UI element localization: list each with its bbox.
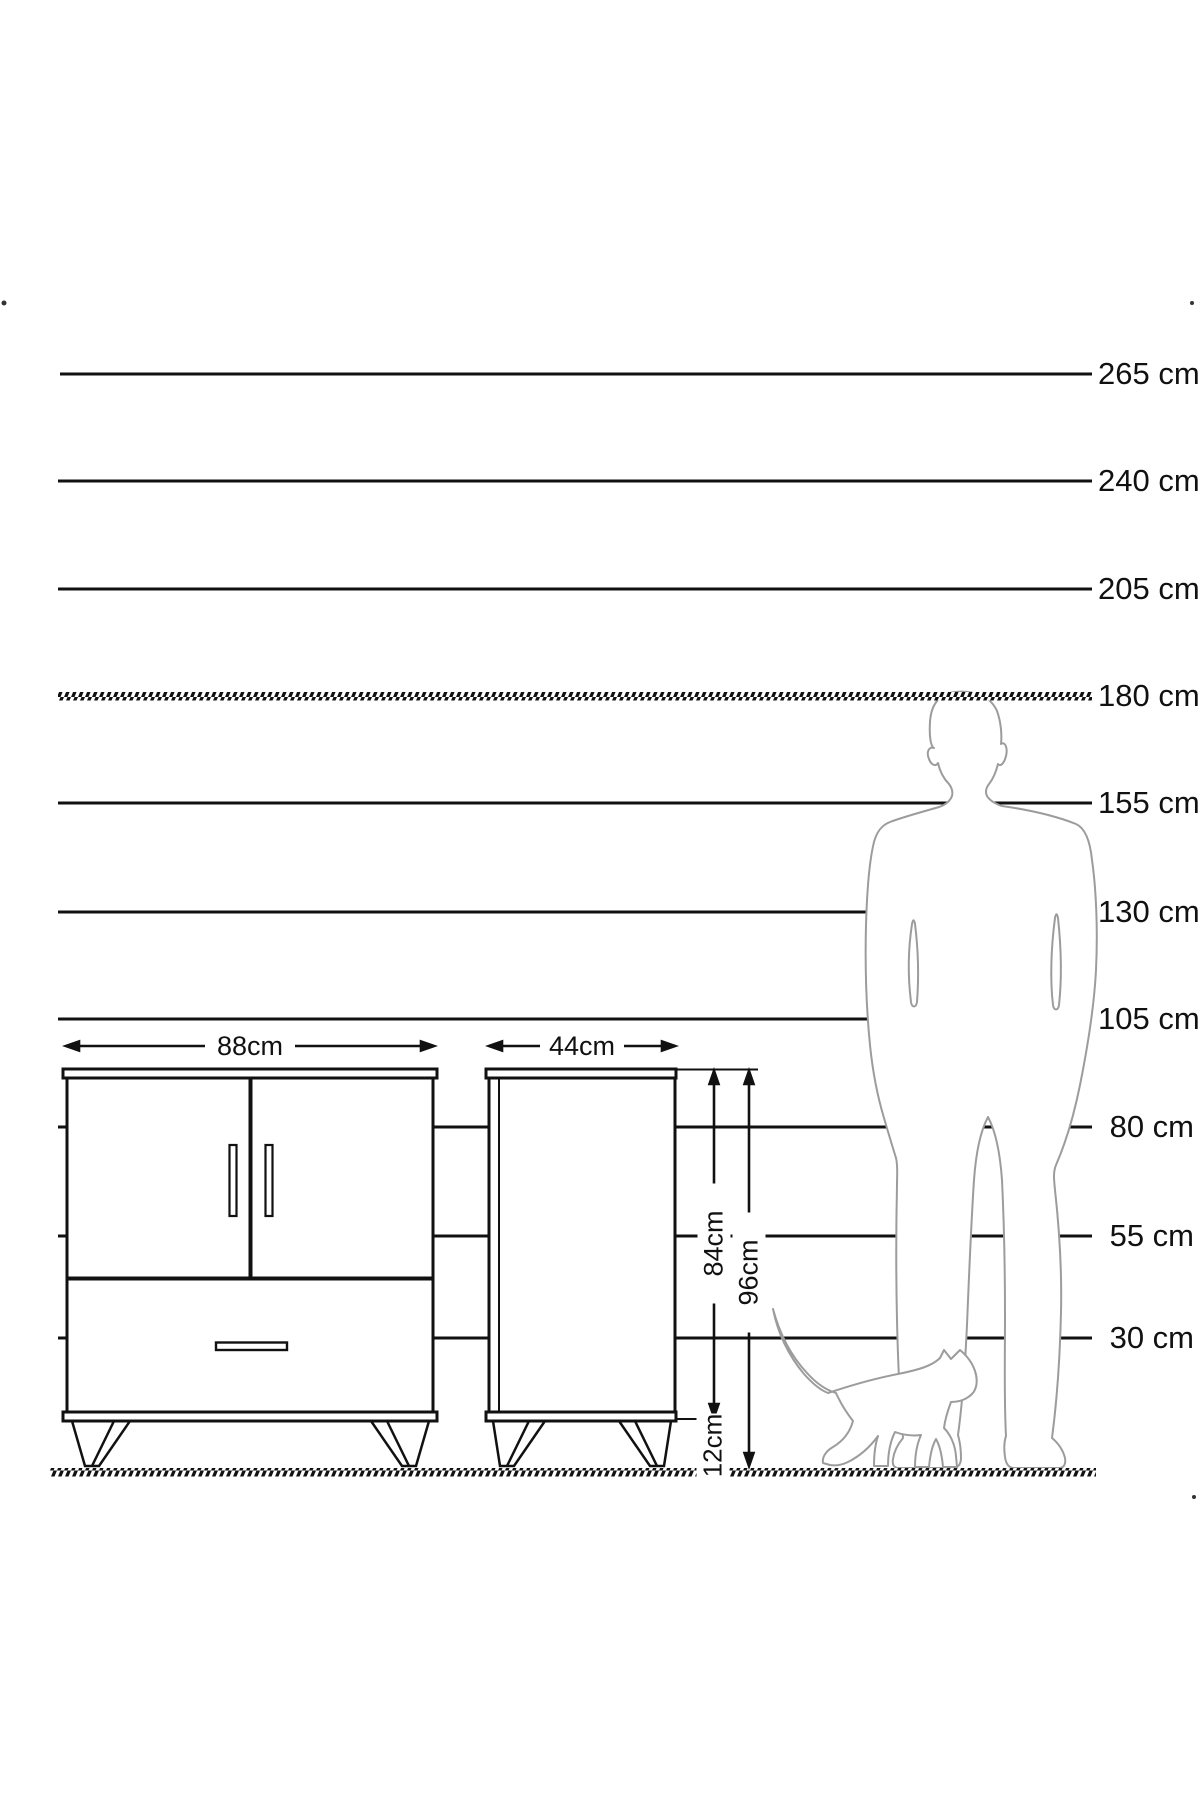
stray-dot-top-right	[1190, 301, 1194, 305]
dim-label-leg-height: 12cm	[697, 1414, 730, 1478]
scale-label-265: 265 cm	[1098, 355, 1194, 393]
door-handle-right	[266, 1145, 273, 1216]
scale-label-30: 30 cm	[1098, 1319, 1194, 1357]
front-cabinet-leg-right	[371, 1421, 429, 1466]
dim-label-body-height: 84cm	[698, 1184, 731, 1304]
scale-label-130: 130 cm	[1098, 893, 1194, 931]
stray-dot-bottom-right	[1192, 1495, 1196, 1499]
scale-label-155: 155 cm	[1098, 784, 1194, 822]
dim-label-side-width: 44cm	[540, 1030, 624, 1062]
door-handle-left	[230, 1145, 237, 1216]
jacket-gap-left	[909, 920, 918, 1006]
front-cabinet-leg-left	[72, 1421, 130, 1466]
side-cabinet-body	[489, 1078, 675, 1412]
man-silhouette	[866, 692, 1097, 1468]
scale-line-180-hatched	[58, 692, 1092, 701]
scale-label-180: 180 cm	[1098, 677, 1194, 715]
stray-dot-top-left	[2, 301, 7, 306]
scale-label-55: 55 cm	[1098, 1217, 1194, 1255]
scale-label-105: 105 cm	[1098, 1000, 1194, 1038]
scale-label-80: 80 cm	[1098, 1108, 1194, 1146]
scale-label-240: 240 cm	[1098, 462, 1194, 500]
ground-line	[50, 1468, 1096, 1477]
diagram-drawing	[0, 0, 1200, 1800]
side-cabinet	[486, 1069, 676, 1466]
front-cabinet	[63, 1069, 437, 1466]
front-cabinet-legs	[72, 1421, 429, 1466]
side-cabinet-legs	[493, 1421, 671, 1466]
side-cabinet-bottom-panel	[486, 1412, 676, 1421]
dim-label-total-height: 96cm	[733, 1213, 766, 1333]
front-cabinet-bottom-panel	[63, 1412, 437, 1421]
drawer-handle	[216, 1343, 287, 1351]
dim-label-front-width: 88cm	[205, 1030, 295, 1062]
furniture-size-diagram: 265 cm 240 cm 205 cm 180 cm 155 cm 130 c…	[0, 0, 1200, 1800]
scale-label-205: 205 cm	[1098, 570, 1194, 608]
